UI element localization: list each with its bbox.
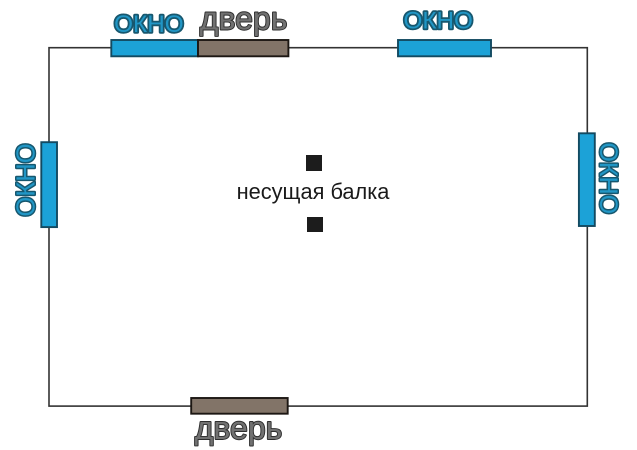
svg-text:ОКНО: ОКНО bbox=[594, 142, 622, 214]
svg-text:ОКНО: ОКНО bbox=[12, 143, 40, 216]
svg-text:ОКНО: ОКНО bbox=[403, 8, 473, 35]
svg-text:дверь: дверь bbox=[200, 1, 288, 37]
svg-text:несущая балка: несущая балка bbox=[237, 179, 391, 204]
svg-text:ОКНО: ОКНО bbox=[114, 11, 184, 38]
svg-text:дверь: дверь bbox=[195, 410, 283, 446]
